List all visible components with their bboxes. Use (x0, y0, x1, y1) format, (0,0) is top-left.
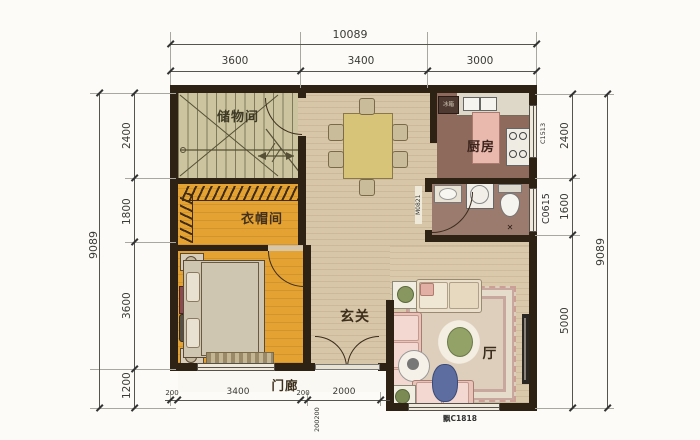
code-bath-door: M0821 (415, 186, 422, 224)
kettle (407, 358, 419, 370)
wall-kitchen-left (430, 93, 437, 143)
window-bathroom-mullion (533, 188, 534, 232)
dim-left-seg-3: 3600 (122, 280, 134, 332)
room-label-entry: 玄关 (325, 306, 385, 326)
dim-line-right-segments (572, 94, 573, 408)
figure-person (432, 364, 458, 402)
dim-top-total: 10089 (300, 29, 400, 41)
dim-right-total: 9089 (595, 222, 607, 282)
code-kitchen-window: C1513 (539, 112, 547, 154)
dim-right-seg-2: 1600 (560, 181, 572, 233)
dining-chair (359, 179, 375, 196)
room-label-cloakroom: 衣帽间 (224, 208, 300, 227)
rug-flower (447, 327, 473, 357)
wall-storage-right-b (298, 136, 306, 178)
room-label-storage: 储物间 (200, 106, 276, 125)
hanger-rail-top (182, 186, 298, 201)
dim-line-top-total (170, 44, 537, 45)
sofa-cushion (449, 282, 479, 309)
floor-plan: 冰箱 ✕ (0, 0, 700, 440)
fridge-label: 冰箱 (443, 102, 454, 108)
dim-top-seg-1: 3600 (200, 56, 270, 68)
fridge: 冰箱 (438, 96, 459, 114)
hanger-rail-left (180, 193, 193, 243)
wall-left (170, 85, 178, 371)
wall-top (170, 85, 537, 93)
dining-chair (359, 98, 375, 115)
room-label-living: 厅 (478, 343, 502, 363)
dim-line-right-total (607, 94, 608, 408)
entry-threshold (315, 364, 380, 370)
dim-left-total: 9089 (88, 215, 100, 275)
wall-living-left (386, 300, 394, 411)
dim-line-left-segments (134, 93, 135, 408)
window-kitchen-mullion (533, 105, 534, 158)
wall-storage-cloak-divider (178, 178, 306, 184)
dim-left-seg-4: 1200 (122, 362, 134, 410)
ext-line (536, 32, 537, 85)
bed-pillow (186, 272, 200, 302)
dim-left-seg-1: 2400 (122, 110, 134, 162)
wall-bath-bottom (425, 235, 537, 242)
code-bay-window: 飘C1818 (436, 413, 484, 424)
room-label-kitchen: 厨房 (455, 136, 507, 155)
dim-line-top-segments (170, 71, 537, 72)
dim-line-bottom (165, 400, 390, 401)
floor-drain: ✕ (505, 223, 515, 233)
dining-chair (328, 124, 344, 141)
dim-left-seg-2: 1800 (122, 186, 134, 238)
wall-right-upper (529, 85, 537, 105)
dim-bottom-seg-1: 200 (162, 390, 182, 398)
ext-line (170, 32, 171, 85)
stove-burner (519, 150, 527, 158)
wall-kitchen-bath-divider (425, 178, 537, 184)
bed-duvet (201, 262, 259, 356)
plant (395, 389, 410, 404)
wall-bath-left-a (425, 184, 432, 192)
stove-burner (519, 132, 527, 140)
window-bay-mullion (408, 407, 500, 408)
kitchen-sink (480, 97, 497, 111)
dining-chair (328, 151, 344, 168)
dim-bottom-seg-3: 200 (293, 390, 313, 398)
ext-line (535, 178, 580, 179)
ext-line (427, 32, 428, 88)
dim-bottom-stacked: 200200 (314, 403, 321, 437)
dim-right-seg-1: 2400 (560, 110, 572, 162)
sofa-cushion (392, 315, 419, 341)
ext-line (535, 94, 614, 95)
stove-burner (509, 132, 517, 140)
wall-right-lower (529, 232, 537, 403)
wall-entry-left (303, 363, 315, 371)
code-bath-window: C0615 (541, 184, 552, 234)
stove-burner (509, 150, 517, 158)
dim-top-seg-2: 3400 (326, 56, 396, 68)
ext-line (535, 235, 580, 236)
dim-right-seg-3: 5000 (560, 295, 572, 347)
dim-bottom-seg-4: 2000 (323, 388, 365, 398)
dining-chair (392, 124, 408, 141)
plant (397, 286, 414, 303)
tv-screen-line (524, 318, 526, 380)
dim-bottom-seg-2: 3400 (216, 388, 260, 398)
toilet-tank (498, 184, 522, 193)
dining-chair (392, 151, 408, 168)
throw-pillow (420, 283, 434, 296)
window-bedroom-mullion (197, 367, 275, 368)
bed-pillow (186, 318, 200, 348)
dim-top-seg-3: 3000 (445, 56, 515, 68)
wall-cloak-bed-divider (178, 245, 268, 251)
ext-line (535, 408, 614, 409)
dining-table (343, 113, 393, 179)
wall-bedroom-right (303, 245, 311, 363)
kitchen-sink (463, 97, 480, 111)
